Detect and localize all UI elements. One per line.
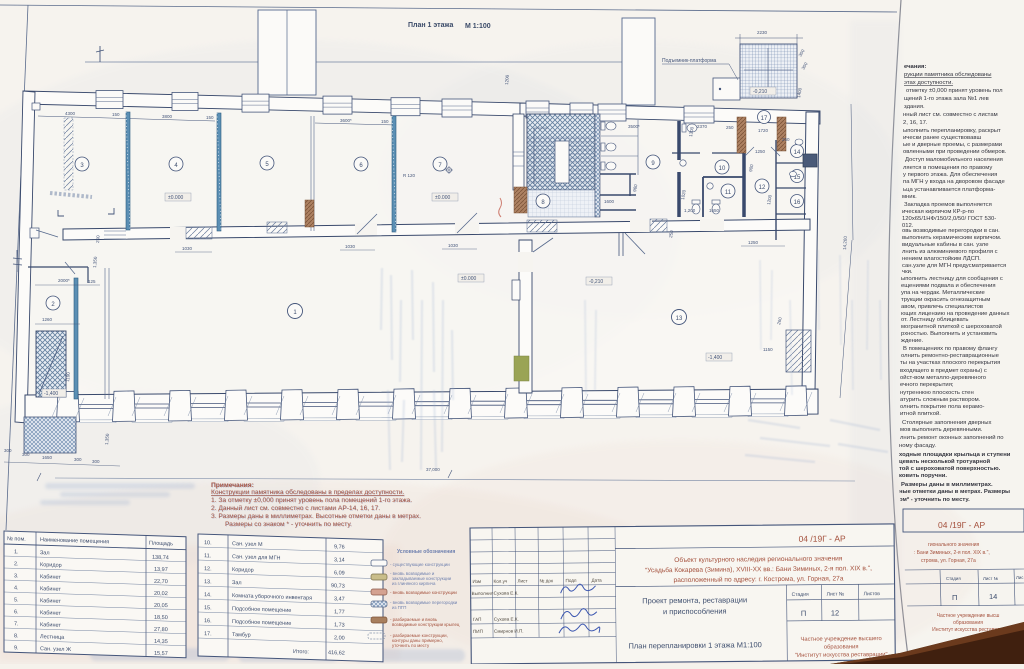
svg-text:1720: 1720 bbox=[758, 128, 769, 133]
svg-text:ыполнить лестницу для сообщени: ыполнить лестницу для сообщения с bbox=[901, 276, 1003, 282]
svg-text:ному фасаду.: ному фасаду. bbox=[899, 443, 936, 449]
svg-text:атурить сложным раствором.: атурить сложным раствором. bbox=[900, 397, 981, 403]
svg-text:отметку ±0,000 принят урове: отметку ±0,000 принят уровень пол bbox=[906, 88, 1003, 94]
svg-text:- существующие конструкции: - существующие конструкции bbox=[390, 562, 450, 567]
svg-text:ыполнить перепланировку, рас: ыполнить перепланировку, раскрыт bbox=[903, 128, 1001, 134]
svg-text:ходные площадки крыльца и ступ: ходные площадки крыльца и ступени bbox=[899, 452, 1011, 458]
svg-text:ойст-вом металло-деревянно: ойст-вом металло-деревянного bbox=[900, 374, 987, 381]
svg-text:олнить покрытие пола керамо: олнить покрытие пола керамо- bbox=[900, 404, 984, 410]
svg-text:1,77: 1,77 bbox=[334, 609, 345, 615]
svg-text:Изм: Изм bbox=[472, 579, 481, 584]
svg-text:1600: 1600 bbox=[604, 199, 615, 204]
svg-text:и приспособления: и приспособления bbox=[663, 607, 727, 617]
svg-text:16.: 16. bbox=[204, 618, 212, 624]
svg-text:Кабинет: Кабинет bbox=[40, 622, 61, 629]
svg-text:здания.: здания. bbox=[904, 104, 925, 110]
svg-text:№ пом.: № пом. bbox=[7, 536, 26, 543]
svg-text:: Бани Зиминых, 2-я пол. XIX в: : Бани Зиминых, 2-я пол. XIX в.", bbox=[914, 550, 990, 556]
svg-text:уточнить по месту: уточнить по месту bbox=[392, 643, 430, 648]
svg-text:3. Размеры даны в миллиметрах.: 3. Размеры даны в миллиметрах. Высотные … bbox=[211, 513, 421, 520]
svg-text:сан.узле для МГН предусматрива: сан.узле для МГН предусматривается bbox=[902, 263, 1006, 269]
svg-text:трукции окрасить огнезащит: трукции окрасить огнезащитным bbox=[901, 297, 990, 303]
svg-text:Выполнил: Выполнил bbox=[472, 591, 494, 596]
svg-text:образования: образования bbox=[953, 620, 983, 626]
svg-text:Закладка проемов выполня: Закладка проемов выполняется bbox=[904, 202, 992, 208]
svg-text:нением влагостойким ЛДСП.: нением влагостойким ЛДСП. bbox=[902, 255, 981, 262]
svg-text:видуальные кабины в сан. у: видуальные кабины в сан. узле bbox=[902, 242, 989, 248]
svg-text:4.: 4. bbox=[14, 585, 19, 591]
svg-text:ически ранее существов: ически ранее существовавш bbox=[903, 135, 981, 141]
svg-text:12: 12 bbox=[759, 185, 766, 191]
svg-text:11: 11 bbox=[725, 190, 732, 196]
svg-text:ечания:: ечания: bbox=[904, 64, 926, 70]
svg-text:Лист №: Лист № bbox=[983, 576, 999, 581]
svg-text:1,200: 1,200 bbox=[684, 208, 696, 213]
svg-text:2,00: 2,00 bbox=[334, 635, 345, 641]
svg-text:Доступ маломобильного населе: Доступ маломобильного населения bbox=[905, 157, 1003, 163]
svg-text:3500*: 3500* bbox=[628, 124, 640, 129]
svg-text:1100: 1100 bbox=[65, 372, 71, 383]
svg-text:125: 125 bbox=[88, 279, 96, 284]
svg-text:Кол.уч: Кол.уч bbox=[493, 579, 507, 584]
svg-text:ическая кирпичом КР-р-по: ическая кирпичом КР-р-по bbox=[902, 209, 975, 215]
svg-text:мник.: мник. bbox=[902, 194, 917, 200]
svg-text:лнить ремонт оконных заполнени: лнить ремонт оконных заполнений по bbox=[900, 434, 1004, 441]
svg-text:ждение.: ждение. bbox=[901, 338, 923, 344]
svg-text:2, 16, 17.: 2, 16, 17. bbox=[903, 120, 928, 126]
svg-text:мов выполнить деревянным: мов выполнить деревянными. bbox=[900, 427, 983, 433]
svg-text:300: 300 bbox=[74, 457, 82, 462]
svg-text:120х65/1НФ/150/2,0/50/ ГОСТ: 120х65/1НФ/150/2,0/50/ ГОСТ 530- bbox=[902, 216, 996, 222]
svg-text:5.: 5. bbox=[14, 597, 19, 603]
svg-text:у первого этажа. Для обеспече: у первого этажа. Для обеспечения bbox=[903, 172, 997, 178]
svg-text:4300: 4300 bbox=[65, 111, 76, 116]
svg-text:ГАП: ГАП bbox=[473, 617, 482, 622]
svg-text:1250: 1250 bbox=[755, 149, 766, 154]
svg-text:1260: 1260 bbox=[42, 317, 53, 322]
svg-text:образования: образования bbox=[824, 644, 859, 650]
svg-text:нный лист см. совместно с лист: нный лист см. совместно с листам bbox=[903, 111, 998, 118]
svg-text:М 1:100: М 1:100 bbox=[465, 23, 491, 30]
svg-text:7.: 7. bbox=[14, 621, 19, 627]
svg-text:могранитной плиткой с шерохова: могранитной плиткой с шероховатой bbox=[901, 323, 1002, 330]
svg-text:авом, привлечь специалис: авом, привлечь специалистов bbox=[901, 304, 983, 310]
svg-text:овленными при проведении обмер: овленными при проведении обмеров. bbox=[903, 149, 1007, 155]
svg-text:Коридор: Коридор bbox=[40, 562, 62, 569]
svg-text:16: 16 bbox=[794, 200, 801, 206]
svg-text:овь возводимые перегородки в с: овь возводимые перегородки в сан. bbox=[902, 228, 1000, 234]
svg-text:Подп: Подп bbox=[565, 578, 576, 583]
svg-text:Размеры со знаком * - уточнить: Размеры со знаком * - уточнить по месту. bbox=[225, 521, 352, 528]
svg-text:12: 12 bbox=[831, 608, 839, 617]
svg-text:8.: 8. bbox=[14, 633, 19, 639]
svg-text:13: 13 bbox=[676, 316, 683, 322]
svg-text:Кабинет: Кабинет bbox=[40, 598, 61, 605]
svg-text:10.: 10. bbox=[204, 540, 212, 546]
svg-text:-1,400: -1,400 bbox=[708, 355, 722, 361]
svg-text:- вновь возводимые конструкции: - вновь возводимые конструкции bbox=[390, 590, 457, 595]
svg-text:14,260: 14,260 bbox=[842, 235, 848, 250]
svg-text:Лис: Лис bbox=[1016, 575, 1024, 580]
svg-text:416,62: 416,62 bbox=[328, 650, 345, 657]
svg-text:250: 250 bbox=[726, 125, 734, 130]
svg-text:ПИП: ПИП bbox=[473, 629, 483, 634]
svg-text:11.: 11. bbox=[204, 553, 212, 559]
svg-text:из глиняного кирпича: из глиняного кирпича bbox=[392, 581, 436, 586]
svg-text:ечного перекрытия;: ечного перекрытия; bbox=[900, 382, 954, 388]
svg-text:Сан. узел Ж: Сан. узел Ж bbox=[40, 646, 71, 653]
svg-text:расположенный по адресу: г. Ко: расположенный по адресу: г. Кострома, ул… bbox=[673, 574, 843, 584]
svg-text:1,350: 1,350 bbox=[104, 433, 110, 445]
svg-text:22,70: 22,70 bbox=[154, 579, 168, 585]
svg-text:2. Данный лист см. совместно с: 2. Данный лист см. совместно с листами А… bbox=[211, 504, 380, 512]
svg-text:3800: 3800 bbox=[162, 114, 173, 119]
svg-text:300: 300 bbox=[92, 459, 100, 464]
svg-text:20,02: 20,02 bbox=[154, 591, 168, 597]
svg-text:Подъемник-платформа: Подъемник-платформа bbox=[662, 58, 717, 64]
svg-text:па МГН у входа на дворовом фас: па МГН у входа на дворовом фасаде bbox=[903, 179, 1005, 185]
svg-text:от. Лестницу облицев: от. Лестницу облицевать bbox=[901, 317, 968, 323]
svg-text:той с шероховатой поверхнос: той с шероховатой поверхностью. bbox=[899, 465, 1001, 472]
svg-text:13,97: 13,97 bbox=[154, 567, 168, 573]
svg-text:щений 1-го этажа зала №1: щений 1-го этажа зала №1 лев bbox=[904, 95, 989, 102]
svg-text:упа на чердак. Металлическ: упа на чердак. Металлические bbox=[901, 290, 986, 296]
svg-text:300: 300 bbox=[4, 448, 12, 453]
svg-text:ты на участках плоского перекр: ты на участках плоского перекрытия bbox=[900, 360, 1000, 366]
svg-text:Сухова Е.К.: Сухова Е.К. bbox=[494, 591, 519, 596]
svg-text:1. За отметку ±0,000 принят ур: 1. За отметку ±0,000 принят уровень пола… bbox=[211, 496, 412, 504]
svg-text:1150: 1150 bbox=[763, 347, 773, 352]
svg-text:цевать несколькой тротуа: цевать несколькой тротуарной bbox=[899, 458, 990, 465]
svg-text:14: 14 bbox=[989, 592, 997, 601]
svg-text:-1,400: -1,400 bbox=[44, 391, 58, 397]
svg-text:18,50: 18,50 bbox=[154, 615, 168, 621]
svg-text:2230: 2230 bbox=[757, 30, 768, 35]
svg-text:Примечания:: Примечания: bbox=[211, 482, 254, 489]
svg-text:из ПГП: из ПГП bbox=[392, 605, 406, 610]
svg-text:Итого:: Итого: bbox=[293, 649, 309, 656]
svg-text:20,05: 20,05 bbox=[154, 603, 168, 609]
svg-text:Тамбур: Тамбур bbox=[232, 632, 251, 639]
svg-text:Лестница: Лестница bbox=[40, 634, 65, 641]
svg-text:17: 17 bbox=[761, 116, 768, 122]
svg-text:выполнить керамическим кирпичо: выполнить керамическим кирпичом. bbox=[902, 235, 1002, 241]
svg-text:1030: 1030 bbox=[182, 246, 193, 251]
svg-text:150: 150 bbox=[112, 112, 120, 117]
svg-text:Стадия: Стадия bbox=[946, 576, 961, 581]
svg-text:Частное учреждение высшего: Частное учреждение высшего bbox=[800, 636, 881, 643]
svg-text:Частное учреждение высш: Частное учреждение высш bbox=[937, 613, 1000, 619]
svg-text:04 /19Г - АР: 04 /19Г - АР bbox=[799, 533, 847, 543]
svg-text:нутреннюю плоскость ст: нутреннюю плоскость стен bbox=[900, 390, 974, 396]
svg-text:1030: 1030 bbox=[345, 244, 356, 249]
svg-text:Сан. узел М: Сан. узел М bbox=[232, 541, 263, 548]
svg-text:±0.000: ±0.000 bbox=[435, 195, 450, 201]
svg-text:1.: 1. bbox=[14, 549, 19, 555]
svg-text:Дата: Дата bbox=[591, 578, 602, 583]
svg-text:входящего в предмет охраны): входящего в предмет охраны) с bbox=[900, 368, 987, 374]
svg-text:П: П bbox=[801, 609, 806, 618]
svg-text:1250: 1250 bbox=[748, 240, 759, 245]
svg-text:-0,210: -0,210 bbox=[753, 89, 767, 95]
svg-text:1,73: 1,73 bbox=[334, 622, 345, 628]
svg-text:14.: 14. bbox=[204, 592, 212, 598]
svg-text:строма, ул. Горная, 27а: строма, ул. Горная, 27а bbox=[921, 558, 976, 564]
svg-text:1650: 1650 bbox=[709, 208, 720, 213]
svg-text:Стадия: Стадия bbox=[792, 592, 809, 598]
svg-text:2000*: 2000* bbox=[58, 278, 70, 283]
svg-text:±0.000: ±0.000 bbox=[461, 276, 476, 282]
svg-text:15.: 15. bbox=[204, 605, 212, 611]
svg-text:ые и дверные проемы, с размер: ые и дверные проемы, с размерами bbox=[903, 142, 1002, 148]
svg-text:-0,210: -0,210 bbox=[589, 279, 603, 285]
svg-text:Кабинет: Кабинет bbox=[40, 586, 61, 593]
svg-text:Площадь: Площадь bbox=[149, 541, 173, 548]
svg-text:ещениями подвала и обеспече: ещениями подвала и обеспечения bbox=[901, 283, 996, 289]
svg-text:Зал: Зал bbox=[40, 550, 50, 556]
svg-text:37,000: 37,000 bbox=[426, 467, 440, 472]
svg-text:3600*: 3600* bbox=[340, 118, 352, 123]
svg-text:рукции памятника обследованы: рукции памятника обследованы bbox=[904, 72, 992, 78]
svg-text:138,74: 138,74 bbox=[152, 555, 169, 562]
svg-text:возводимые конструкции крылец: возводимые конструкции крылец bbox=[392, 622, 460, 627]
svg-text:1030: 1030 bbox=[448, 243, 459, 248]
svg-text:1200: 1200 bbox=[504, 74, 510, 85]
svg-text:9.: 9. bbox=[14, 645, 19, 651]
svg-text:рхностью. Выполнить и устан: рхностью. Выполнить и установить bbox=[901, 331, 997, 337]
svg-text:гионального значения: гионального значения bbox=[928, 542, 980, 548]
svg-text:Столярные заполнения дверн: Столярные заполнения дверных bbox=[902, 420, 992, 426]
svg-text:3,47: 3,47 bbox=[334, 596, 345, 602]
svg-text:±0.000: ±0.000 bbox=[168, 195, 183, 201]
svg-text:Сухова Е.К.: Сухова Е.К. bbox=[494, 617, 519, 622]
svg-text:Размеры даны в миллиметр: Размеры даны в миллиметрах. bbox=[901, 482, 993, 488]
svg-text:В помещениях по правому фл: В помещениях по правому флангу bbox=[903, 346, 997, 352]
svg-text:олнить ремонтно-реставрацион: олнить ремонтно-реставрационные bbox=[901, 353, 1000, 359]
svg-text:ляется в помещения по прав: ляется в помещения по правому bbox=[903, 165, 992, 171]
svg-text:Проект ремонта, реставрации: Проект ремонта, реставрации bbox=[642, 595, 747, 605]
svg-text:Листов: Листов bbox=[864, 591, 881, 597]
svg-text:итной плиткой.: итной плиткой. bbox=[900, 410, 941, 417]
svg-text:№ док: № док bbox=[539, 578, 553, 583]
svg-text:П: П bbox=[952, 593, 957, 602]
svg-text:лнить из алюминиевого профил: лнить из алюминиевого профиля с bbox=[902, 249, 998, 255]
svg-text:Зал: Зал bbox=[232, 580, 242, 586]
svg-text:Лист №: Лист № bbox=[827, 591, 845, 597]
svg-text:этах доступности.: этах доступности. bbox=[904, 80, 953, 86]
svg-text:17.: 17. bbox=[204, 631, 212, 637]
svg-text:Кабинет: Кабинет bbox=[40, 574, 61, 581]
svg-text:150: 150 bbox=[381, 119, 389, 124]
svg-text:3,14: 3,14 bbox=[334, 557, 345, 563]
svg-text:90,73: 90,73 bbox=[331, 583, 345, 589]
svg-text:12.: 12. bbox=[204, 566, 212, 572]
svg-text:Кабинет: Кабинет bbox=[40, 610, 61, 617]
svg-text:300: 300 bbox=[22, 452, 30, 457]
svg-text:13.: 13. bbox=[204, 579, 212, 585]
svg-text:ковить поручни.: ковить поручни. bbox=[899, 473, 947, 479]
svg-text:ом* - уточнить по месту.: ом* - уточнить по месту. bbox=[899, 497, 970, 503]
svg-text:15,57: 15,57 bbox=[154, 651, 168, 657]
svg-text:ьца устанавливается платформ: ьца устанавливается платформа- bbox=[903, 187, 995, 193]
svg-text:9,76: 9,76 bbox=[334, 544, 345, 550]
svg-text:Смирнов И.П.: Смирнов И.П. bbox=[494, 628, 524, 633]
svg-text:Объект культурного наследия ре: Объект культурного наследия региональног… bbox=[674, 554, 843, 564]
svg-text:150: 150 bbox=[206, 115, 214, 120]
svg-text:План перепланировки 1 этажа М1: План перепланировки 1 этажа М1:100 bbox=[628, 640, 761, 650]
svg-text:Конструкции памятника обследов: Конструкции памятника обследованы в пред… bbox=[211, 488, 404, 496]
svg-text:чки.: чки. bbox=[902, 269, 913, 275]
svg-text:14: 14 bbox=[794, 150, 801, 156]
svg-text:27,80: 27,80 bbox=[154, 627, 168, 633]
svg-text:1650: 1650 bbox=[42, 455, 53, 460]
svg-text:14,35: 14,35 bbox=[154, 639, 168, 645]
svg-text:План 1 этажа: План 1 этажа bbox=[408, 22, 454, 29]
svg-text:Условные обозначения: Условные обозначения bbox=[397, 548, 455, 555]
svg-text:Коридор: Коридор bbox=[232, 567, 254, 574]
svg-text:Лист: Лист bbox=[517, 578, 528, 583]
svg-text:6.: 6. bbox=[14, 609, 19, 615]
svg-text:250: 250 bbox=[782, 137, 790, 142]
svg-text:1,350: 1,350 bbox=[92, 256, 98, 268]
svg-text:6,09: 6,09 bbox=[334, 570, 345, 576]
svg-text:04 /19Г - АР: 04 /19Г - АР bbox=[938, 520, 985, 530]
svg-text:2370: 2370 bbox=[697, 124, 708, 129]
svg-text:ные отметки даны в метрах. Раз: ные отметки даны в метрах. Размеры bbox=[899, 489, 1010, 495]
svg-text:10: 10 bbox=[719, 166, 726, 172]
svg-text:250: 250 bbox=[95, 235, 101, 243]
svg-text:3.: 3. bbox=[14, 573, 19, 579]
svg-text:R 120: R 120 bbox=[403, 173, 416, 178]
svg-text:2.: 2. bbox=[14, 561, 19, 567]
